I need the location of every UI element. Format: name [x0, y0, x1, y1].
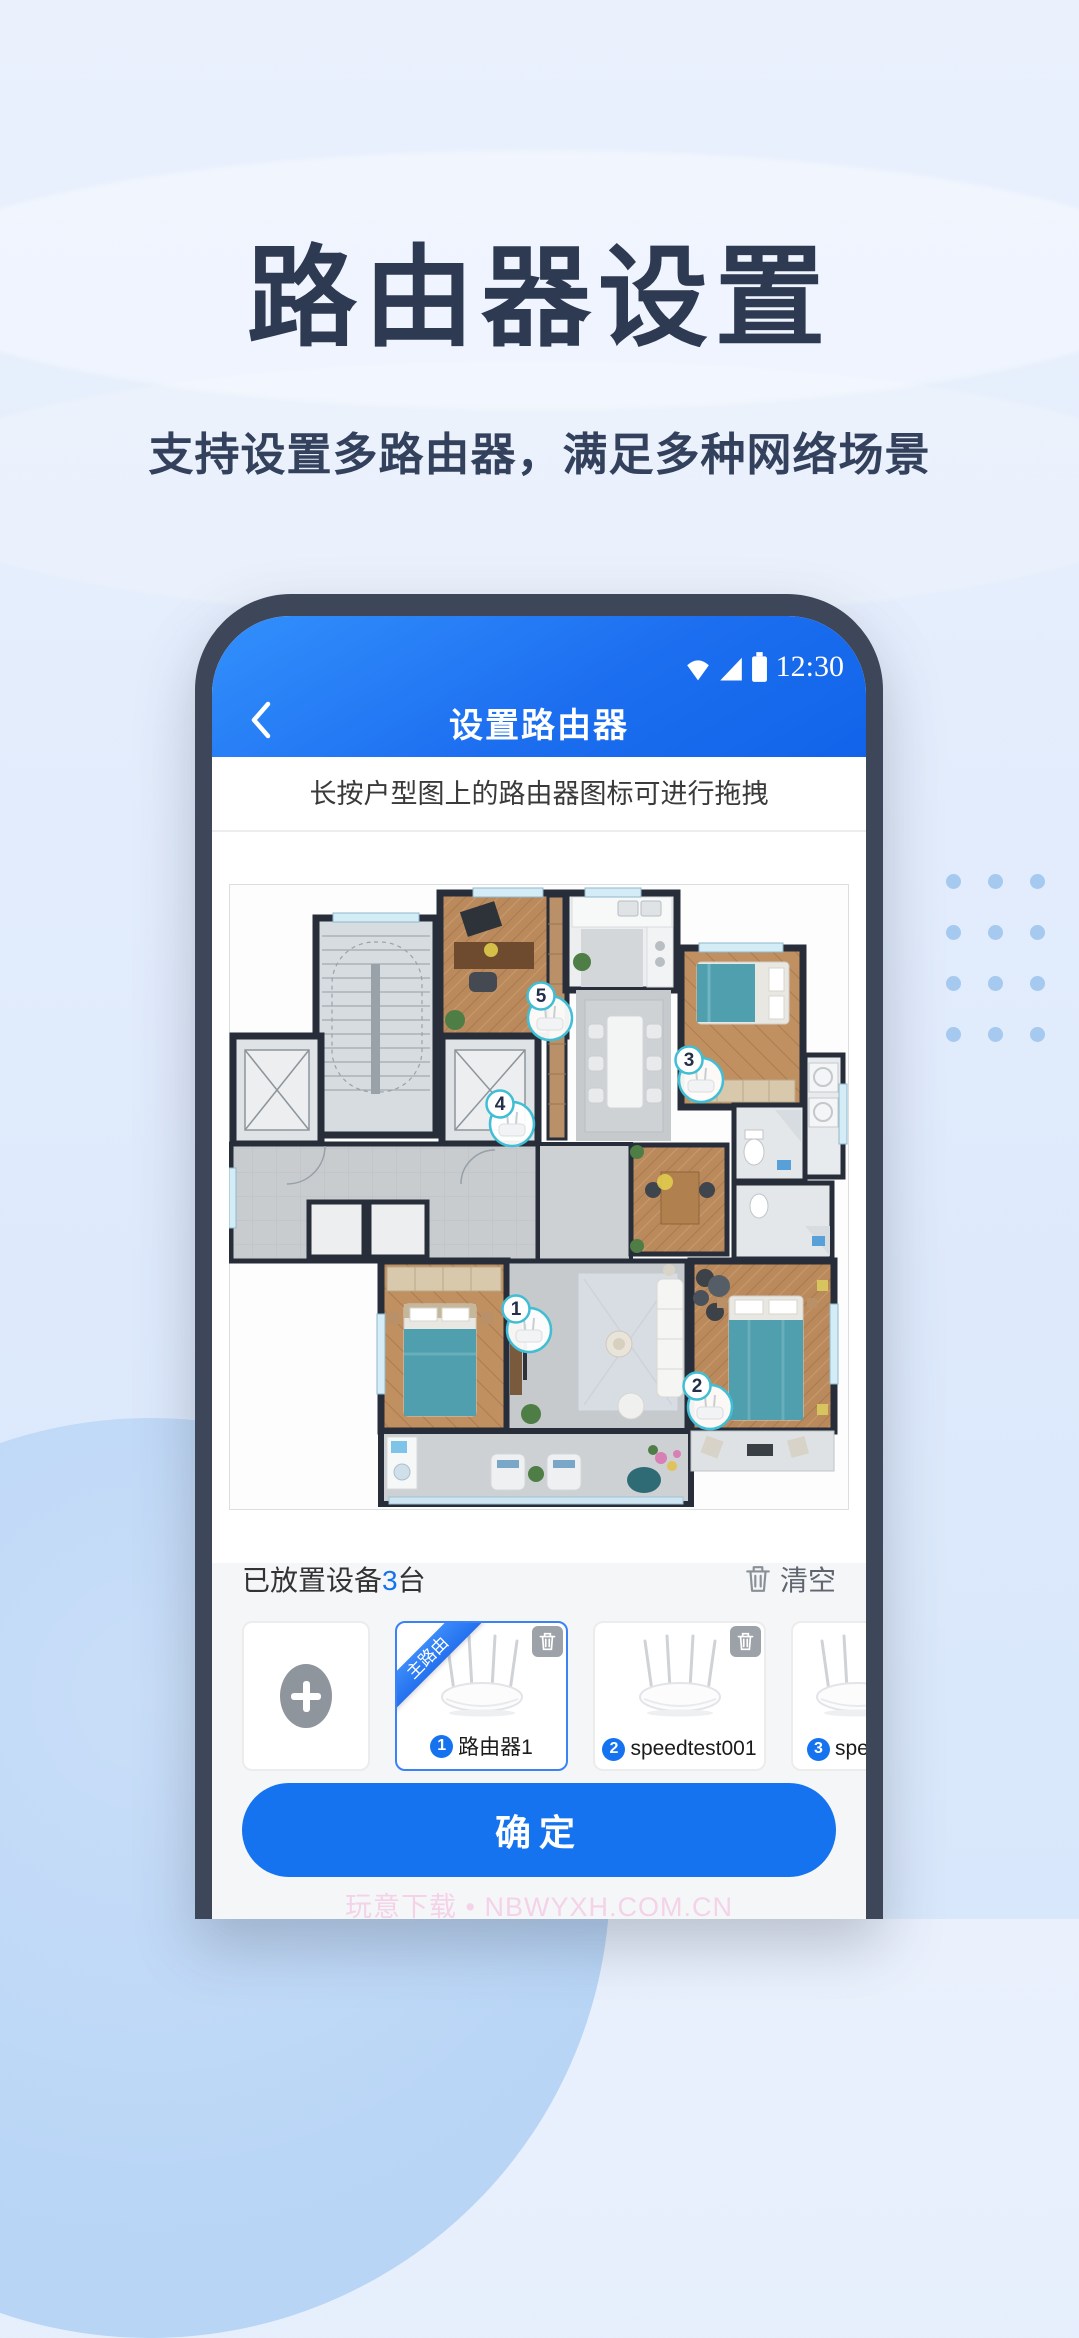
svg-text:2: 2	[692, 1376, 703, 1397]
battery-icon	[751, 652, 768, 682]
device-card-list: 主路由 1 路由器1	[242, 1621, 866, 1771]
phone-screen: 12:30 设置路由器 长按户型图上的路由器图标可进行拖拽	[212, 616, 866, 1919]
confirm-button[interactable]: 确定	[242, 1783, 836, 1877]
status-time: 12:30	[776, 652, 844, 682]
nav-bar: 设置路由器	[212, 690, 866, 757]
room-bath-upper	[734, 1105, 805, 1181]
device-number-badge: 3	[807, 1738, 830, 1761]
device-number-badge: 2	[602, 1738, 625, 1761]
app-header: 12:30 设置路由器	[212, 616, 866, 757]
signal-icon	[719, 655, 743, 682]
decor-dots-grid	[946, 874, 1045, 1042]
device-label: 3 spe	[793, 1737, 866, 1761]
page-title: 路由器设置	[0, 208, 1079, 368]
balcony	[381, 1431, 691, 1504]
room-bedroom-bottom-left	[381, 1261, 507, 1431]
router-image	[630, 1633, 730, 1717]
inner-hallway	[538, 1144, 631, 1261]
device-card-speedtest001[interactable]: 2 speedtest001	[593, 1621, 766, 1771]
svg-text:5: 5	[536, 986, 547, 1007]
room-staircase	[316, 918, 436, 1135]
device-card-router1[interactable]: 主路由 1 路由器1	[395, 1621, 568, 1771]
placed-devices-count: 已放置设备3台	[242, 1559, 426, 1599]
device-number-badge: 1	[430, 1735, 453, 1758]
instruction-text: 长按户型图上的路由器图标可进行拖拽	[212, 757, 866, 832]
trash-icon	[539, 1632, 556, 1651]
status-bar: 12:30	[212, 616, 866, 690]
trash-icon	[745, 1565, 771, 1593]
device-label: 2 speedtest001	[595, 1737, 764, 1761]
background-wave	[0, 360, 1079, 620]
svg-text:3: 3	[684, 1050, 695, 1071]
router-image	[807, 1633, 866, 1717]
room-dining	[576, 990, 671, 1141]
plus-icon	[280, 1664, 332, 1728]
device-section: 已放置设备3台 清空 主路由	[212, 1563, 866, 1919]
add-device-card[interactable]	[242, 1621, 370, 1771]
room-bath-lower	[734, 1183, 832, 1259]
corridor	[231, 1144, 538, 1261]
nav-title: 设置路由器	[212, 698, 866, 747]
floor-plan-area: 5 3 4	[212, 832, 866, 1541]
device-label: 1 路由器1	[397, 1731, 566, 1761]
router-image	[432, 1633, 532, 1717]
wifi-icon	[685, 655, 711, 682]
page-subtitle: 支持设置多路由器，满足多种网络场景	[0, 418, 1079, 483]
delete-device-button[interactable]	[532, 1626, 563, 1657]
room-kitchen	[566, 893, 677, 990]
svg-text:4: 4	[495, 1094, 506, 1115]
phone-mockup: 12:30 设置路由器 长按户型图上的路由器图标可进行拖拽	[195, 594, 883, 1919]
terrace	[691, 1431, 834, 1471]
room-utility	[805, 1055, 843, 1177]
delete-device-button[interactable]	[730, 1626, 761, 1657]
floor-plan-image[interactable]: 5 3 4	[229, 884, 849, 1510]
room-study-nook	[630, 1145, 727, 1254]
device-card-partial[interactable]: 3 spe	[791, 1621, 866, 1771]
trash-icon	[737, 1632, 754, 1651]
elevator-left	[233, 1036, 321, 1144]
watermark-text: 玩意下载 • NBWYXH.COM.CN	[242, 1885, 836, 1919]
clear-all-button[interactable]: 清空	[745, 1559, 836, 1599]
svg-text:1: 1	[511, 1299, 522, 1320]
